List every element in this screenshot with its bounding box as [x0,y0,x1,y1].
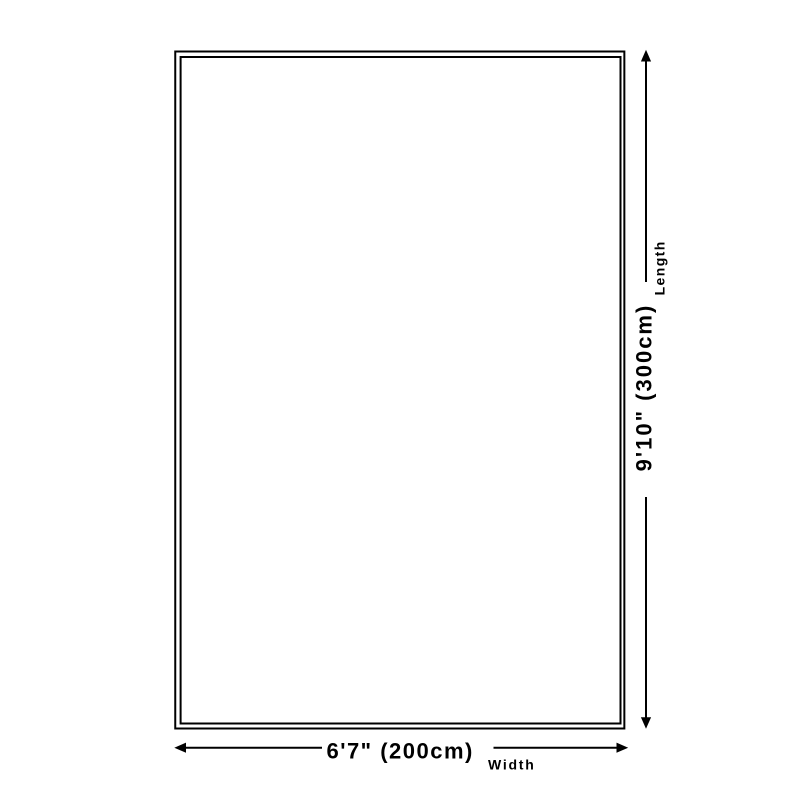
svg-text:Length: Length [652,240,668,295]
svg-text:Width: Width [488,756,536,772]
svg-text:6'7" (200cm): 6'7" (200cm) [326,739,473,764]
svg-text:9'10" (300cm): 9'10" (300cm) [632,304,657,472]
